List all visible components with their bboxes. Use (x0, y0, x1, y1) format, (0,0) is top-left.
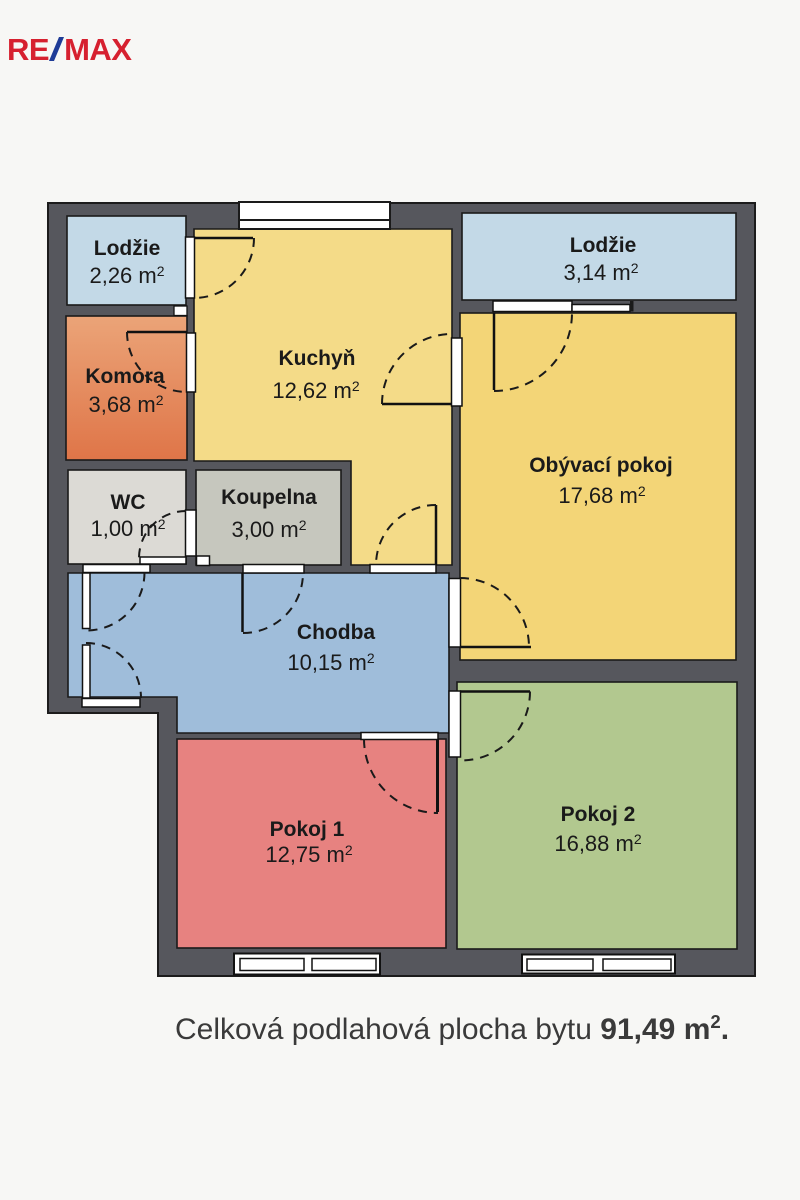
svg-text:Lodžie: Lodžie (570, 234, 637, 257)
svg-text:3,14 m2: 3,14 m2 (563, 260, 638, 285)
svg-text:3,00 m2: 3,00 m2 (231, 517, 306, 542)
svg-text:2,26 m2: 2,26 m2 (89, 263, 164, 288)
svg-text:1,00 m2: 1,00 m2 (90, 516, 165, 541)
svg-text:12,75 m2: 12,75 m2 (265, 842, 353, 867)
svg-text:Lodžie: Lodžie (94, 237, 161, 260)
svg-text:17,68 m2: 17,68 m2 (558, 483, 646, 508)
svg-text:Obývací pokoj: Obývací pokoj (529, 454, 673, 477)
svg-text:Pokoj 1: Pokoj 1 (270, 818, 345, 841)
svg-text:Chodba: Chodba (297, 621, 375, 644)
svg-text:3,68 m2: 3,68 m2 (88, 392, 163, 417)
svg-text:WC: WC (111, 491, 146, 514)
svg-text:Komora: Komora (85, 365, 165, 388)
svg-text:Kuchyň: Kuchyň (278, 347, 355, 370)
svg-text:16,88 m2: 16,88 m2 (554, 831, 642, 856)
svg-text:10,15 m2: 10,15 m2 (287, 650, 375, 675)
svg-text:Koupelna: Koupelna (221, 486, 317, 509)
svg-text:Pokoj 2: Pokoj 2 (561, 803, 636, 826)
svg-text:12,62 m2: 12,62 m2 (272, 378, 360, 403)
